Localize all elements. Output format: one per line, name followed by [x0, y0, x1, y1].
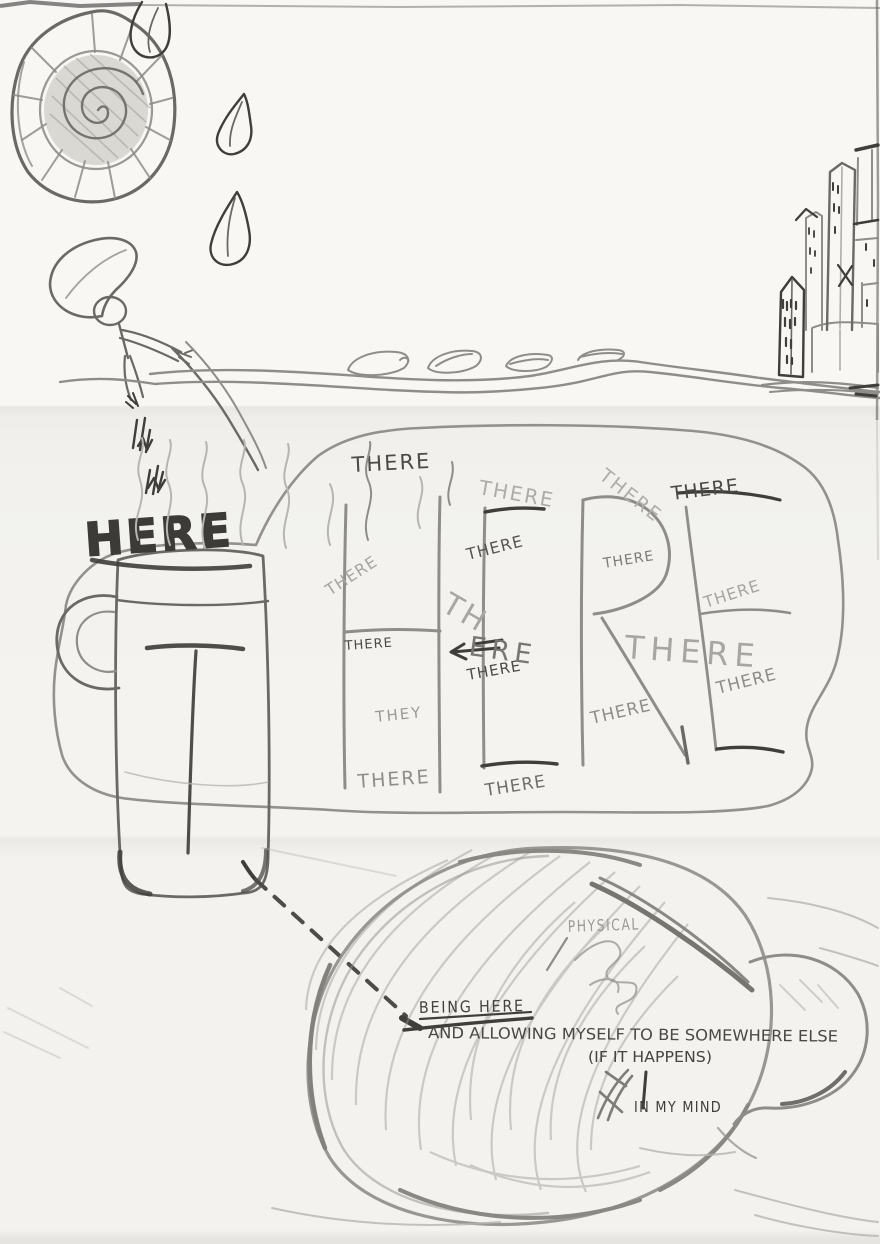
mug-handle: [57, 596, 119, 690]
raindrop-icon: [217, 94, 251, 154]
front-tower: [779, 277, 804, 377]
there-word: THERE: [588, 696, 653, 730]
letter-E2: [678, 492, 790, 752]
physical-pointer-line: [547, 938, 567, 970]
there-word: THERE: [463, 531, 525, 564]
there-word: THERE: [622, 628, 762, 675]
drip-marks: [133, 418, 165, 494]
letter-T-on-mug: [147, 645, 243, 853]
stepping-stones: [348, 349, 624, 375]
there-word: THERE: [343, 636, 393, 654]
edge-buildings: [854, 145, 878, 327]
raindrop-icon: [131, 2, 170, 57]
raindrop-icon: [211, 192, 250, 265]
there-word: THERE: [321, 552, 381, 600]
if-it-happens-label: (IF IT HAPPENS): [588, 1048, 712, 1066]
stick-figure: [50, 238, 266, 494]
tall-tower: [827, 163, 855, 330]
nose: [718, 955, 867, 1158]
there-word: THERE: [669, 475, 740, 505]
there-word: THERE: [700, 576, 762, 612]
city-skyline: [762, 145, 878, 396]
in-my-mind-label: IN MY MIND: [634, 1098, 722, 1116]
head-dark-scribble: [598, 1070, 632, 1120]
allowing-label: AND ALLOWING MYSELF TO BE SOMEWHERE ELSE: [428, 1024, 838, 1046]
dashed-connector-line: [243, 862, 420, 1028]
there-word: THERE: [601, 548, 655, 572]
there-word: THERE: [356, 766, 431, 793]
scanned-sketch-page: { "artwork": { "type": "hand-drawn penci…: [0, 0, 880, 1244]
sketch-canvas: THERETHERETHERETHERETHERETHERETHERETHERE…: [0, 0, 880, 1244]
path-to-city: [60, 349, 880, 398]
scattered-there-words: THERETHERETHERETHERETHERETHERETHERETHERE…: [321, 449, 779, 801]
sun-spiral-icon: [12, 11, 175, 202]
mid-building: [796, 209, 822, 330]
here-label: HERE: [83, 503, 235, 567]
physical-label: PHYSICAL: [567, 914, 640, 936]
figure-head: [94, 297, 126, 325]
there-word: THERE: [483, 772, 548, 802]
mug: [57, 550, 269, 897]
there-word: THERE: [350, 449, 432, 477]
there-word: THEY: [374, 703, 424, 726]
